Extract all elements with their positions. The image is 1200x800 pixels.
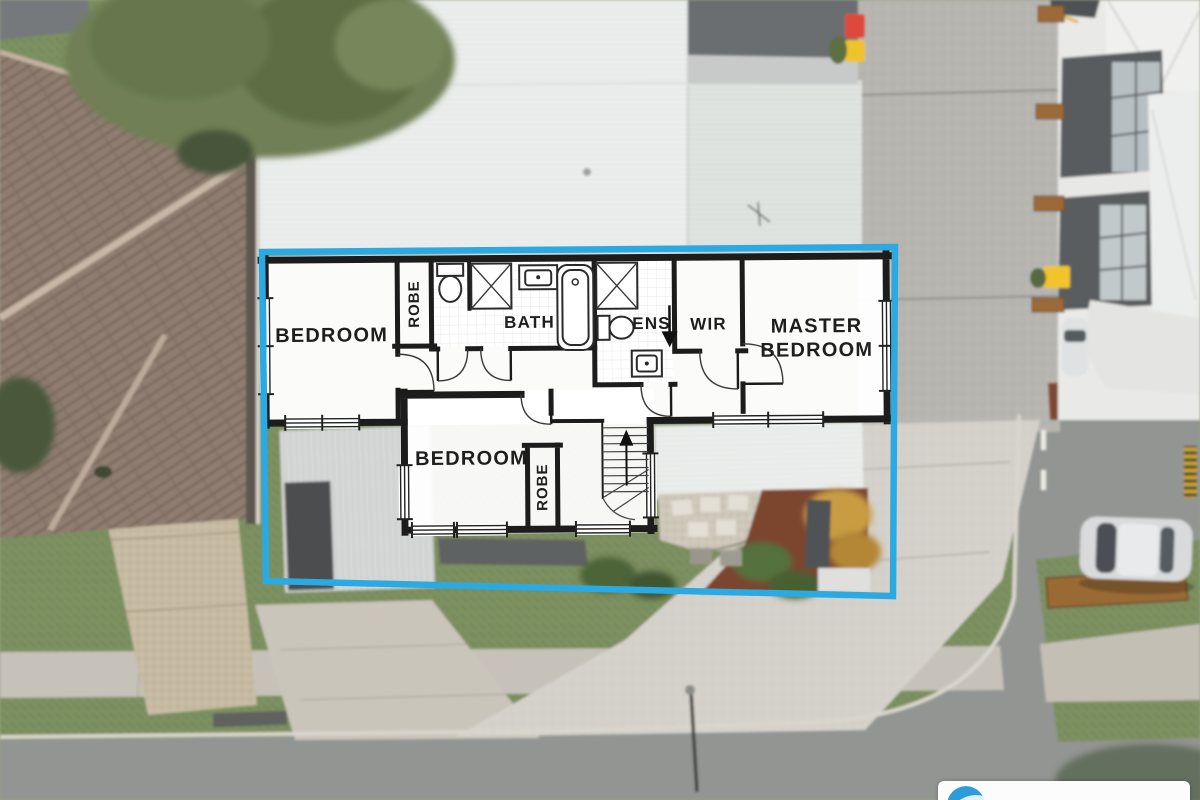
red-bin xyxy=(845,14,865,38)
label-master-2: BEDROOM xyxy=(760,339,873,362)
shower-symbol xyxy=(471,263,511,308)
vanity-symbol xyxy=(519,265,557,289)
garden-ledge xyxy=(818,568,870,592)
label-robe1: ROBE xyxy=(406,280,423,327)
label-bath: BATH xyxy=(504,313,555,332)
brand-logo-box xyxy=(938,781,1190,800)
golden-palm xyxy=(829,532,881,572)
shrubs xyxy=(177,130,253,174)
vanity-symbol xyxy=(632,350,662,376)
bathtub-symbol xyxy=(557,265,594,350)
speed-bump xyxy=(1184,446,1197,498)
parked-car xyxy=(1078,516,1197,596)
yellow-bin xyxy=(1044,266,1070,288)
paver xyxy=(720,550,742,566)
label-ens: ENS xyxy=(632,314,671,333)
shower-symbol xyxy=(596,263,637,309)
road-marking xyxy=(1041,430,1046,450)
boundary-fence xyxy=(246,152,256,524)
modern-house-right xyxy=(1050,0,1200,420)
aerial-floorplan-image: BEDROOM ROBE BATH ENS WIR MASTER BEDROOM… xyxy=(0,0,1200,800)
label-bedroom2: BEDROOM xyxy=(415,447,528,470)
label-bedroom1: BEDROOM xyxy=(275,324,388,347)
brand-logo-circle xyxy=(947,786,985,800)
label-robe2: ROBE xyxy=(534,464,551,511)
storm-drain xyxy=(213,711,287,728)
paver xyxy=(690,548,712,564)
roof-vent xyxy=(583,168,591,176)
road-marking xyxy=(1041,470,1046,490)
shrub xyxy=(1030,268,1046,288)
shrub xyxy=(829,36,847,64)
garden-rock xyxy=(94,466,112,478)
label-wir: WIR xyxy=(690,314,727,333)
toilet-symbol xyxy=(597,316,633,340)
label-master-1: MASTER xyxy=(771,315,863,338)
brand-logo-mark xyxy=(947,786,985,800)
yellow-bin xyxy=(845,40,865,62)
ac-unit xyxy=(805,500,831,569)
shade-awning xyxy=(438,538,588,566)
fence-cap xyxy=(256,152,260,524)
toilet-symbol xyxy=(437,264,463,302)
shrubs xyxy=(628,571,676,599)
